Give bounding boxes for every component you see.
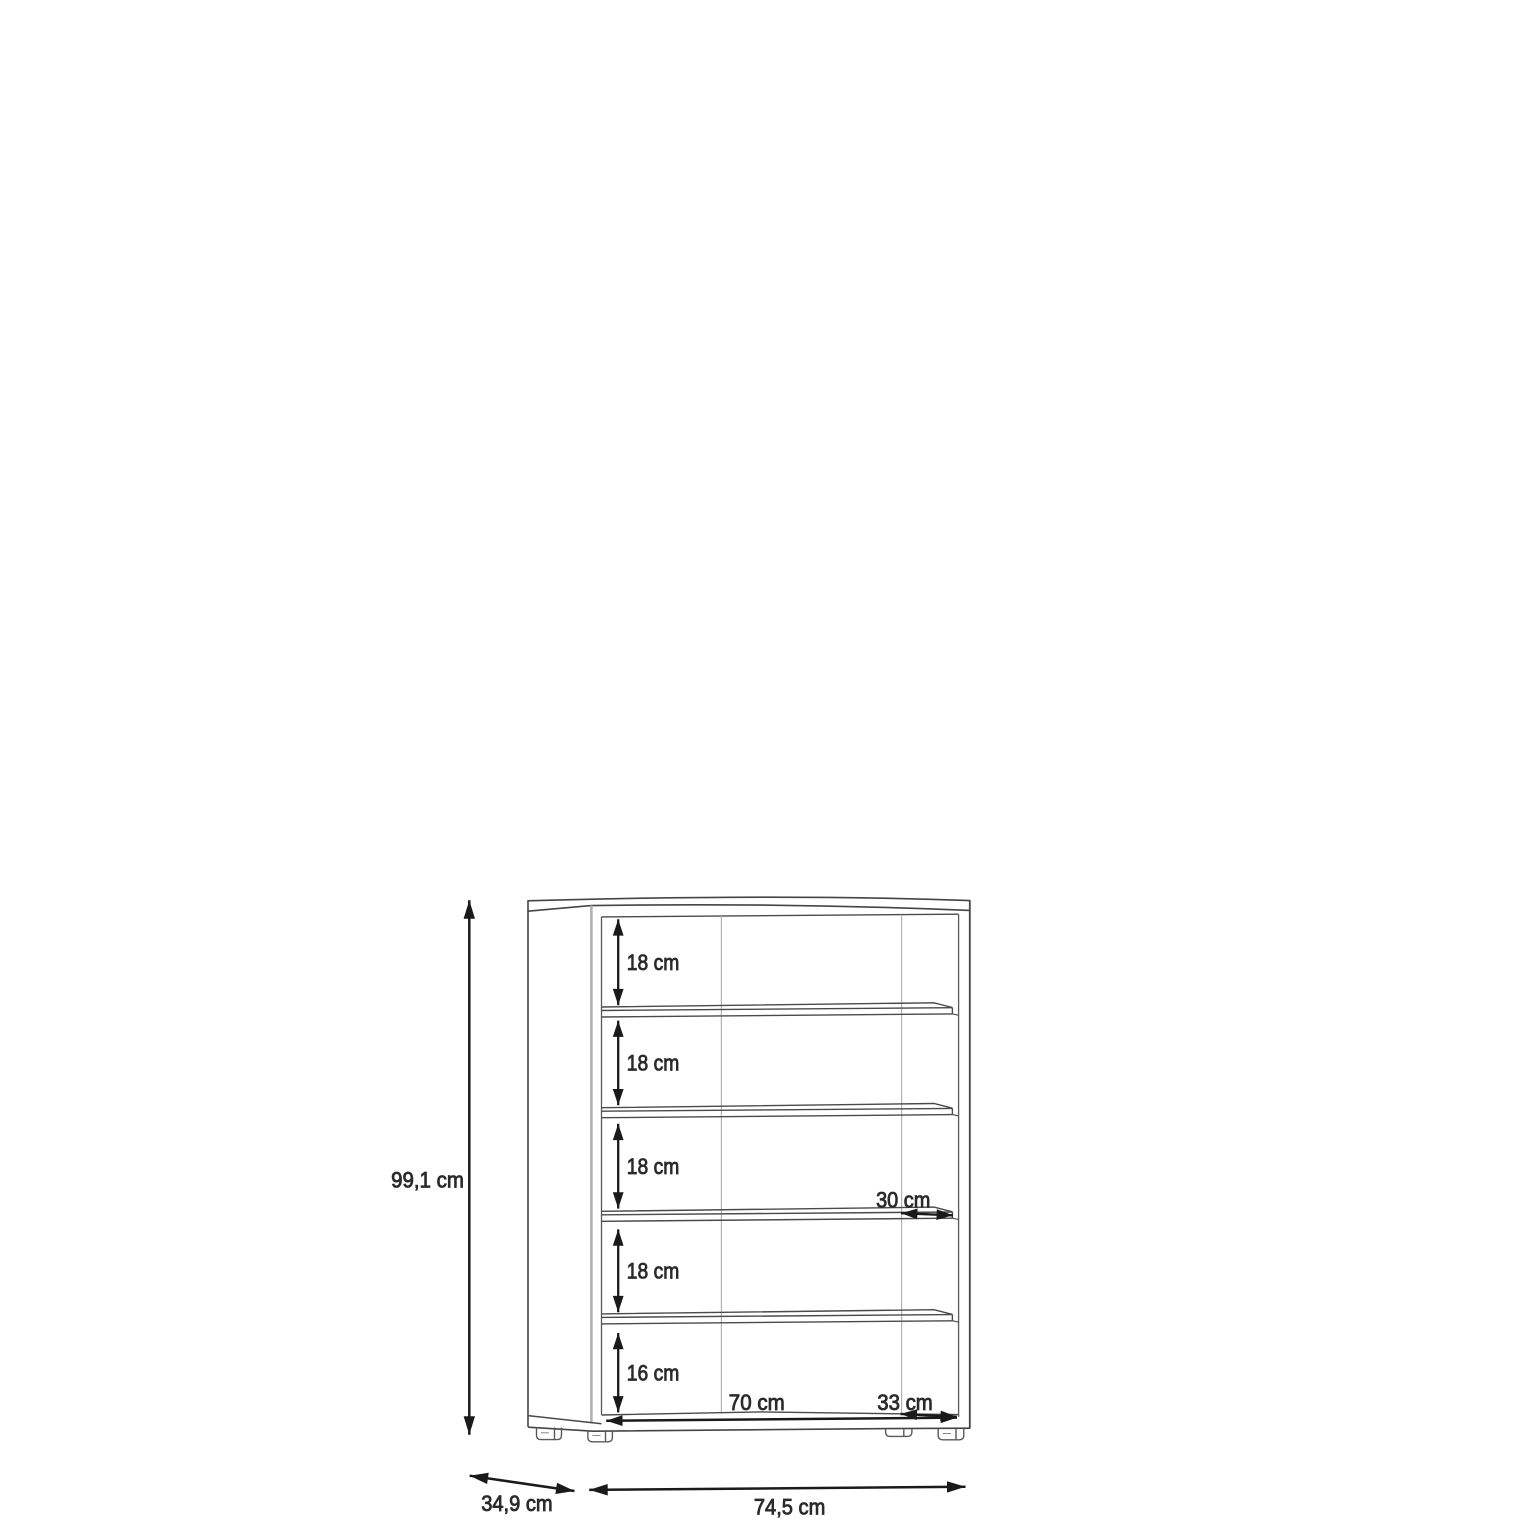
svg-text:18 cm: 18 cm	[627, 950, 680, 975]
svg-text:74,5 cm: 74,5 cm	[754, 1495, 825, 1520]
svg-text:18 cm: 18 cm	[627, 1154, 680, 1179]
svg-text:33 cm: 33 cm	[877, 1390, 933, 1415]
svg-text:18 cm: 18 cm	[627, 1259, 680, 1284]
svg-text:70 cm: 70 cm	[729, 1390, 785, 1415]
svg-text:16 cm: 16 cm	[627, 1360, 680, 1385]
svg-text:30 cm: 30 cm	[876, 1188, 930, 1213]
svg-text:99,1 cm: 99,1 cm	[391, 1168, 464, 1193]
svg-text:18 cm: 18 cm	[627, 1051, 680, 1076]
svg-text:34,9 cm: 34,9 cm	[481, 1491, 552, 1516]
